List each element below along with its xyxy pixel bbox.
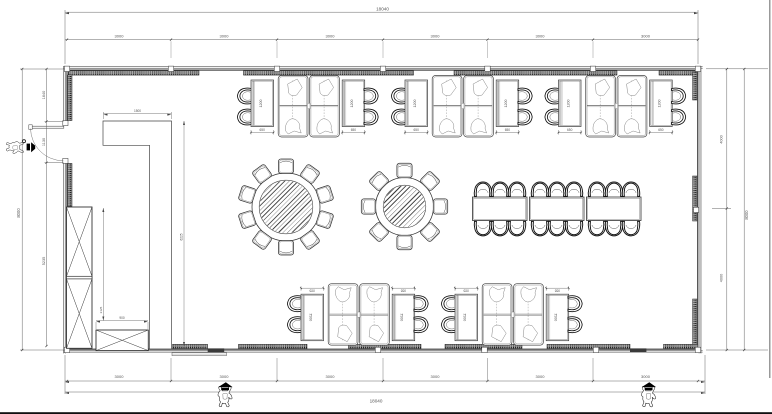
svg-text:5235: 5235 [42, 257, 46, 265]
svg-text:3000: 3000 [641, 374, 651, 379]
svg-text:3000: 3000 [641, 33, 651, 38]
svg-text:3000: 3000 [220, 33, 230, 38]
svg-text:4000: 4000 [720, 135, 724, 143]
svg-text:3000: 3000 [220, 374, 230, 379]
svg-text:8000: 8000 [16, 208, 21, 218]
svg-text:18040: 18040 [376, 6, 389, 11]
svg-text:3000: 3000 [115, 33, 125, 38]
svg-text:900: 900 [119, 316, 125, 320]
svg-text:4000: 4000 [720, 274, 724, 282]
svg-text:1130: 1130 [42, 138, 46, 146]
svg-text:3000: 3000 [115, 374, 125, 379]
svg-text:3000: 3000 [536, 374, 546, 379]
svg-text:3000: 3000 [536, 33, 546, 38]
svg-text:3000: 3000 [431, 33, 441, 38]
svg-text:3000: 3000 [326, 374, 336, 379]
svg-text:6225: 6225 [180, 233, 184, 240]
svg-text:1640: 1640 [42, 91, 46, 99]
svg-text:8000: 8000 [744, 210, 749, 220]
svg-text:3000: 3000 [326, 33, 336, 38]
svg-text:18040: 18040 [370, 398, 383, 403]
svg-text:2125: 2125 [99, 306, 103, 313]
svg-text:3000: 3000 [431, 374, 441, 379]
svg-text:1500: 1500 [134, 109, 141, 113]
